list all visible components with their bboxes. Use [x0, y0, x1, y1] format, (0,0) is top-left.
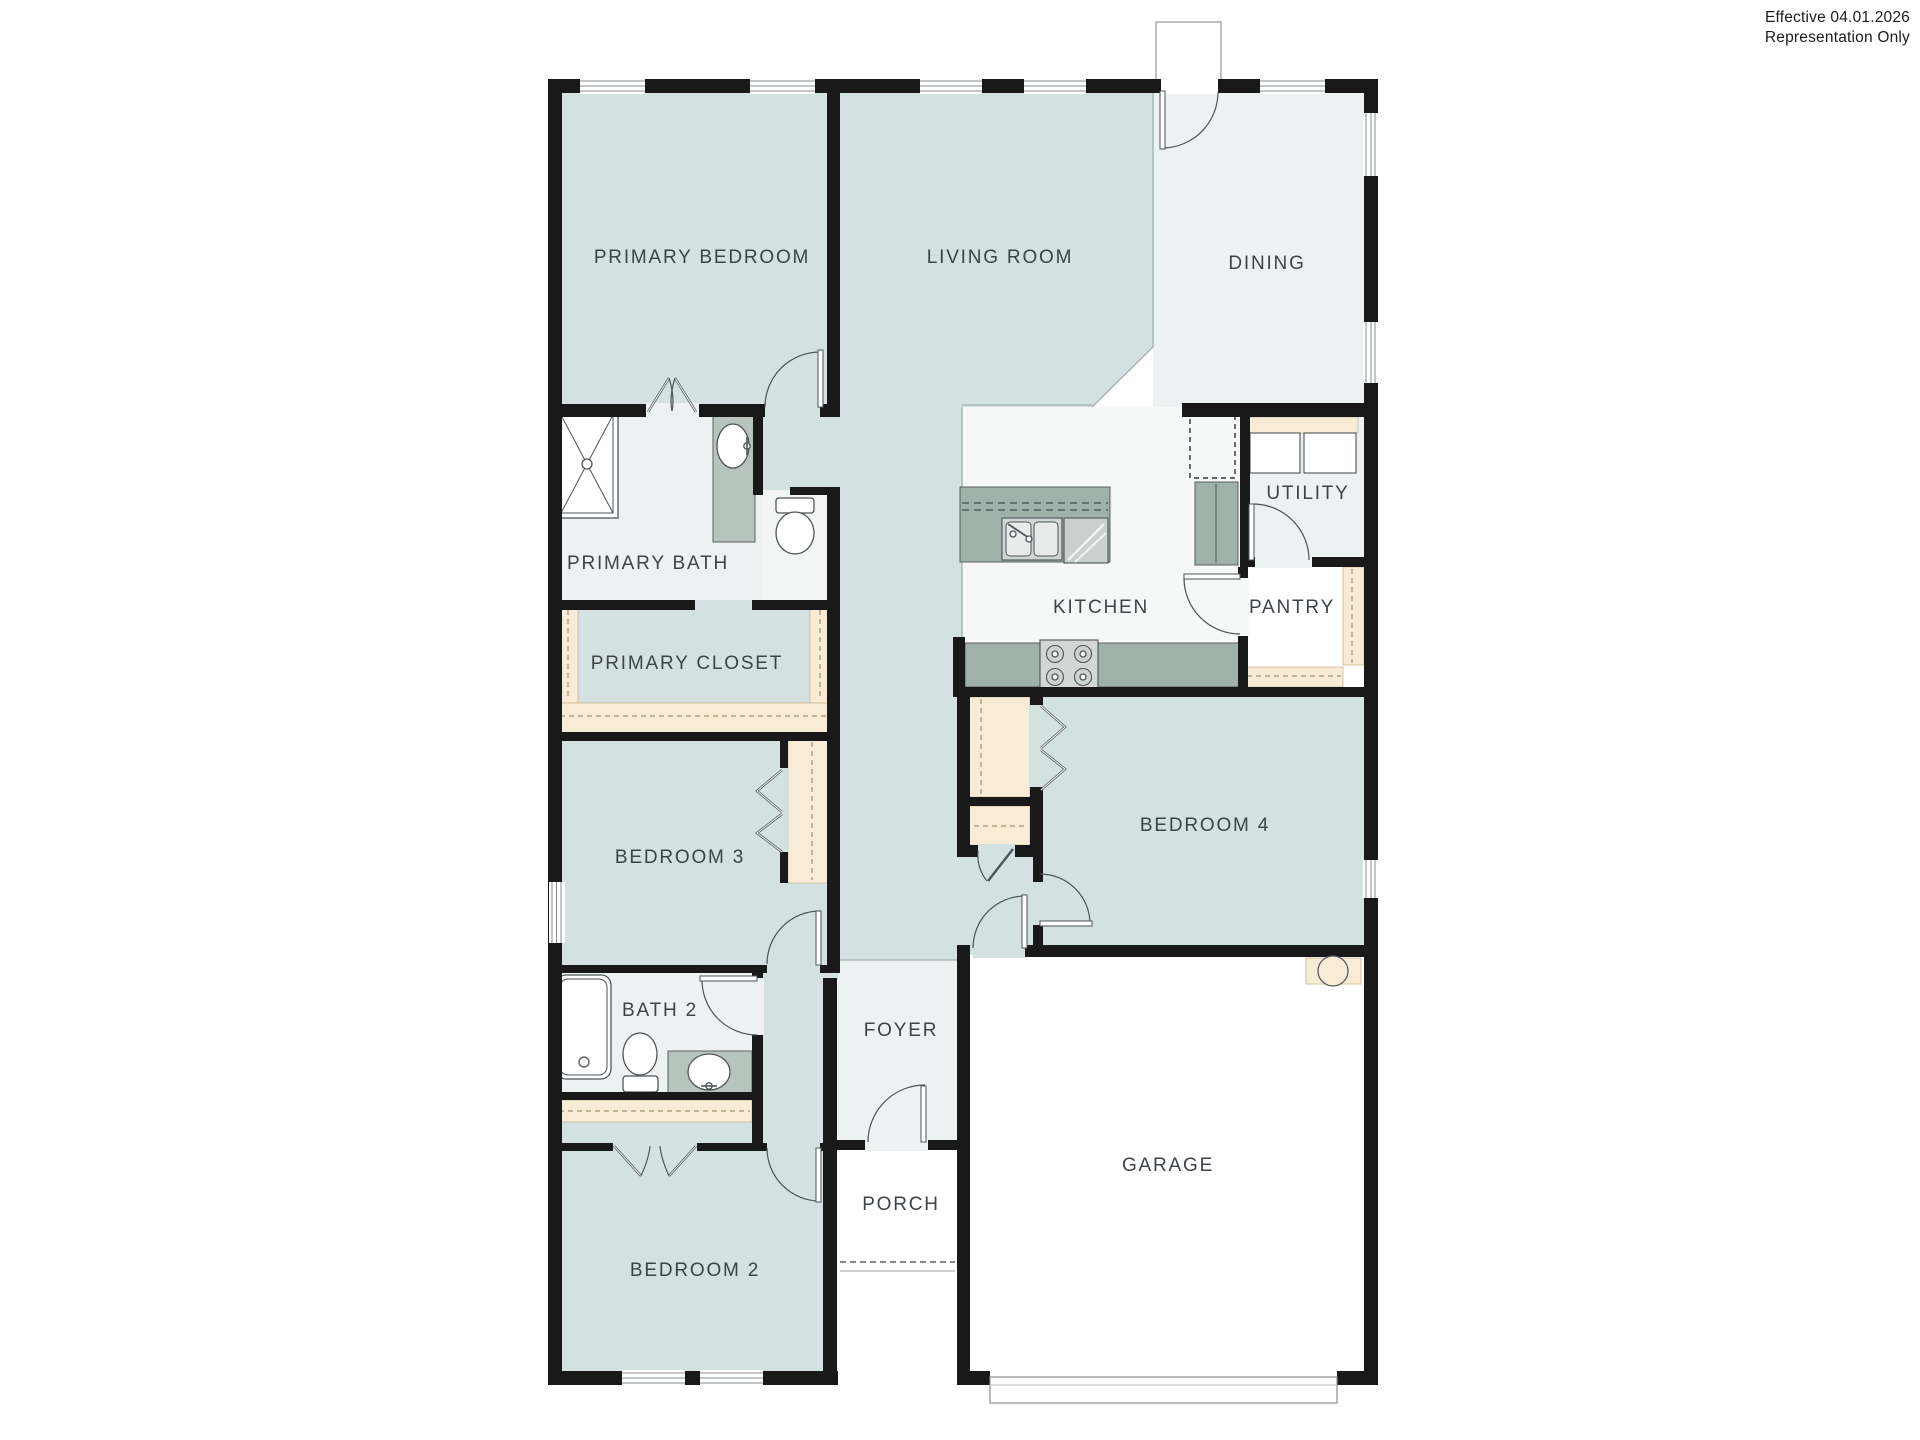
- window-icon: [750, 78, 815, 94]
- room-label-bedroom-4: BEDROOM 4: [1140, 815, 1270, 837]
- shower-icon: [556, 410, 618, 518]
- room-label-pantry: PANTRY: [1249, 597, 1335, 619]
- primary-vanity-sink-icon: [713, 410, 755, 542]
- hall-vestibule-floor: [955, 845, 1043, 955]
- room-label-dining: DINING: [1228, 253, 1305, 275]
- room-label-utility: UTILITY: [1266, 483, 1349, 505]
- window-icon: [622, 1370, 685, 1386]
- bathtub-icon: [556, 975, 611, 1079]
- small-hall-floor: [763, 973, 823, 1143]
- floor-plan-drawing: [0, 0, 1920, 1440]
- title-block: Effective 04.01.2026 Representation Only: [1765, 8, 1910, 48]
- room-label-bedroom-3: BEDROOM 3: [615, 847, 745, 869]
- kitchen-lower-counter: [965, 643, 1240, 687]
- garage-door-icon: [990, 1377, 1337, 1403]
- water-heater-icon: [1306, 956, 1361, 986]
- hallway-floor: [833, 407, 963, 980]
- room-label-foyer: FOYER: [864, 1020, 938, 1042]
- bath-2-vanity-sink-icon: [668, 1051, 752, 1095]
- pantry-shelf-right: [1343, 567, 1364, 665]
- bedroom-3-closet-shelf: [788, 740, 830, 883]
- window-icon: [1363, 322, 1379, 383]
- room-label-bath-2: BATH 2: [622, 1000, 698, 1022]
- window-icon: [920, 78, 982, 94]
- room-label-primary-bedroom: PRIMARY BEDROOM: [594, 247, 810, 269]
- effective-date-text: Effective 04.01.2026: [1765, 8, 1910, 28]
- washer-icon: [1250, 433, 1300, 473]
- representation-text: Representation Only: [1765, 28, 1910, 48]
- bath-2-toilet-icon: [623, 1033, 658, 1092]
- window-icon: [549, 882, 565, 943]
- washer-dryer-backsplash: [1248, 417, 1358, 433]
- room-label-porch: PORCH: [862, 1194, 940, 1216]
- room-label-living-room: LIVING ROOM: [927, 247, 1073, 269]
- primary-toilet-icon: [776, 498, 814, 554]
- room-label-primary-closet: PRIMARY CLOSET: [591, 653, 783, 675]
- window-icon: [1024, 78, 1086, 94]
- kitchen-sink-icon: [1002, 518, 1062, 560]
- porch-floor: [837, 1150, 957, 1378]
- window-icon: [1363, 113, 1379, 176]
- room-label-garage: GARAGE: [1122, 1155, 1214, 1177]
- room-label-bedroom-2: BEDROOM 2: [630, 1260, 760, 1282]
- foyer-floor: [838, 960, 957, 1142]
- pantry-shelf-bottom: [1245, 667, 1343, 687]
- dishwasher-icon: [1064, 518, 1108, 563]
- room-label-primary-bath: PRIMARY BATH: [567, 553, 729, 575]
- window-icon: [1260, 78, 1325, 94]
- dining-floor: [1153, 86, 1371, 410]
- room-label-kitchen: KITCHEN: [1053, 597, 1149, 619]
- bedroom-4-closet-shelf: [963, 697, 1030, 797]
- floorplan-page: PRIMARY BEDROOM LIVING ROOM DINING PRIMA…: [0, 0, 1920, 1440]
- dryer-icon: [1304, 433, 1356, 473]
- primary-closet-shelf-bottom: [558, 703, 830, 733]
- stove-icon: [1040, 640, 1098, 690]
- suite-vestibule-floor: [763, 407, 833, 493]
- window-icon: [1363, 860, 1379, 898]
- window-icon: [580, 78, 645, 94]
- window-icon: [700, 1370, 763, 1386]
